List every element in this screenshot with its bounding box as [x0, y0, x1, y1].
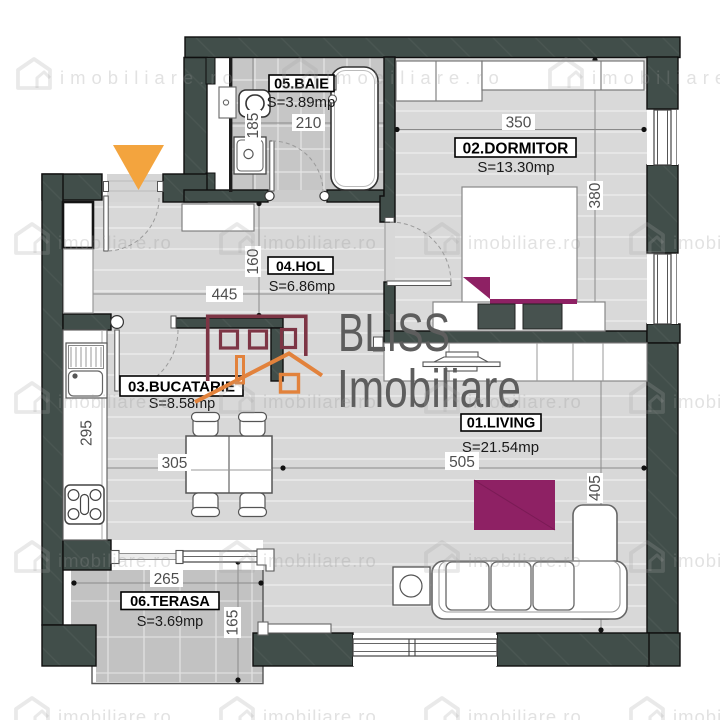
svg-text:265: 265	[154, 571, 180, 588]
svg-text:06.TERASA: 06.TERASA	[130, 594, 210, 610]
svg-text:350: 350	[506, 115, 532, 132]
svg-text:S=3.89mp: S=3.89mp	[267, 94, 336, 111]
svg-text:405: 405	[587, 475, 604, 501]
svg-text:S=13.30mp: S=13.30mp	[477, 159, 554, 176]
svg-text:165: 165	[225, 610, 242, 636]
svg-text:S=6.86mp: S=6.86mp	[269, 279, 336, 295]
svg-text:BLISS: BLISS	[338, 303, 450, 363]
svg-text:210: 210	[296, 115, 322, 132]
svg-text:S=3.69mp: S=3.69mp	[137, 614, 204, 630]
svg-text:02.DORMITOR: 02.DORMITOR	[463, 141, 569, 158]
svg-text:295: 295	[79, 420, 96, 446]
svg-text:380: 380	[587, 182, 604, 208]
svg-text:505: 505	[449, 454, 475, 471]
svg-text:185: 185	[245, 113, 262, 139]
svg-text:04.HOL: 04.HOL	[276, 258, 325, 274]
svg-text:305: 305	[162, 455, 188, 472]
svg-text:445: 445	[212, 287, 238, 304]
